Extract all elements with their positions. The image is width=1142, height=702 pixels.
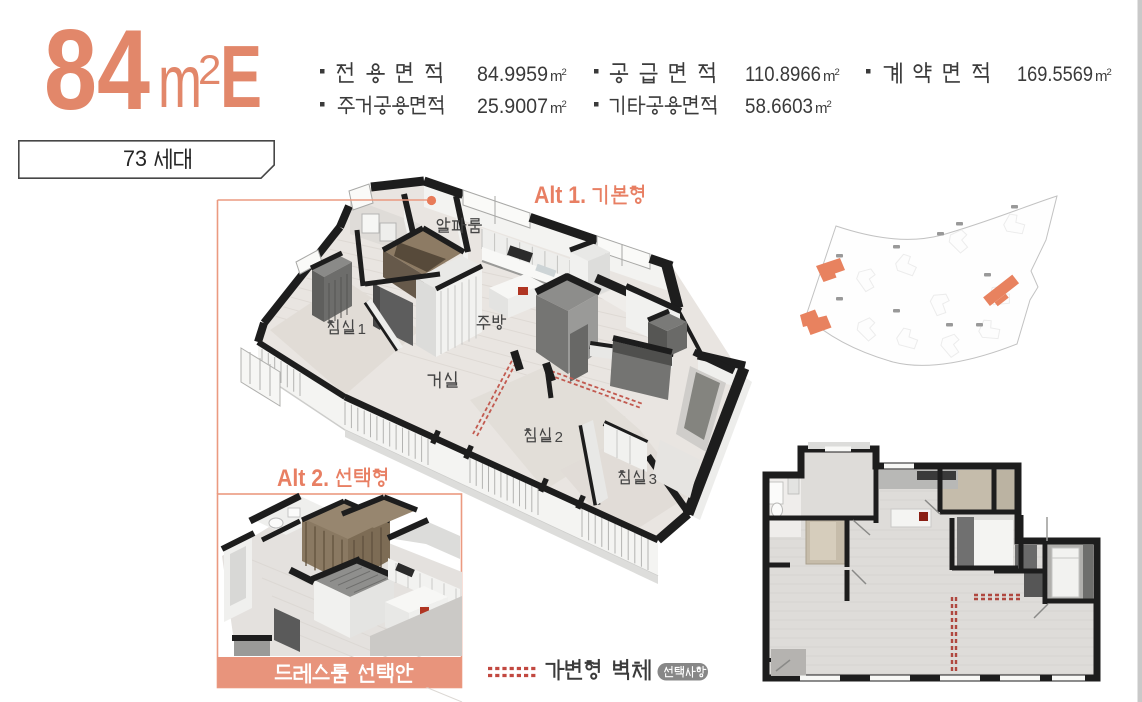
- svg-text:169.5569: 169.5569: [1017, 62, 1093, 86]
- svg-text:2: 2: [198, 46, 221, 93]
- svg-text:110.8966: 110.8966: [745, 62, 821, 86]
- svg-text:58.6603: 58.6603: [745, 94, 813, 118]
- svg-text:m: m: [158, 40, 202, 123]
- svg-text:E: E: [220, 27, 262, 126]
- svg-text:25.9007: 25.9007: [477, 94, 548, 118]
- svg-text:Alt 1.: Alt 1.: [534, 182, 586, 209]
- svg-text:2: 2: [555, 429, 563, 446]
- svg-text:3: 3: [649, 471, 657, 488]
- svg-text:Alt 2.: Alt 2.: [277, 465, 329, 492]
- svg-text:1: 1: [358, 321, 366, 338]
- svg-text:2: 2: [835, 67, 840, 78]
- svg-text:2: 2: [1107, 67, 1112, 78]
- svg-text:2: 2: [827, 99, 832, 110]
- svg-text:84: 84: [44, 7, 150, 134]
- svg-text:84.9959: 84.9959: [477, 62, 548, 86]
- svg-text:2: 2: [562, 67, 567, 78]
- svg-text:2: 2: [562, 99, 567, 110]
- svg-text:73: 73: [123, 146, 147, 171]
